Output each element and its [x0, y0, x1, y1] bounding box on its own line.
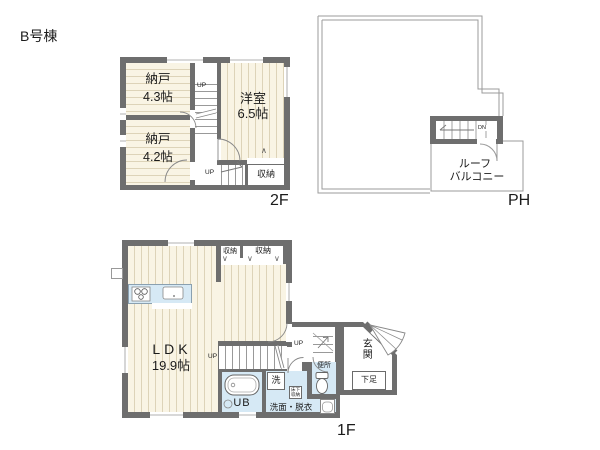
door-opening: [287, 356, 302, 371]
window: [168, 240, 194, 246]
roof-balcony-label-2: バルコニー: [450, 171, 505, 183]
room-label: 納戸: [145, 72, 170, 86]
kitchen-counter: [128, 284, 192, 304]
entrance-label: 玄関: [360, 338, 371, 360]
window: [122, 347, 128, 373]
window: [150, 412, 183, 418]
toilet-label: 便所: [317, 362, 331, 370]
floor-label-ph: PH: [508, 192, 530, 210]
vanity-unit: [320, 399, 335, 414]
floor-label-1f: 1F: [337, 422, 356, 440]
door-opening: [190, 162, 195, 180]
shoe-box-label: 下足: [361, 376, 377, 385]
window: [239, 412, 256, 418]
room-ldk-left: [128, 246, 218, 412]
building-label: B号棟: [20, 29, 57, 45]
ph-roof-outline: [318, 16, 523, 193]
window: [284, 67, 290, 97]
ph-stairwell: [430, 116, 503, 161]
up-label: UP: [205, 169, 214, 176]
room-size: 4.2帖: [143, 150, 173, 164]
ldk-label: LDK: [152, 342, 191, 358]
floor-label-2f: 2F: [270, 192, 289, 210]
floorplan-canvas: B号棟 納戸 4.3帖 納戸 4.2帖 洋室 6.5帖 収納 UP UP ∧ 2…: [0, 0, 600, 450]
folding-door-mark: ∨: [247, 255, 253, 264]
kitchen-vent: [111, 268, 123, 279]
folding-door-mark: ∨: [274, 255, 280, 264]
stairs-2f-bottom: [215, 165, 245, 185]
up-label: UP: [208, 353, 217, 360]
window: [120, 135, 126, 147]
room-size: 4.3帖: [143, 90, 173, 104]
folding-door-mark: ∧: [261, 147, 267, 156]
window: [286, 283, 292, 301]
room-2f-storage-1: [126, 63, 190, 115]
door-opening: [190, 110, 195, 128]
roof-balcony-label-1: ルーフ: [459, 158, 491, 170]
room-label: 洋室: [240, 92, 266, 107]
room-ldk-dining: [218, 264, 286, 341]
folding-door-mark: ∨: [222, 255, 228, 264]
room-label: 納戸: [145, 132, 170, 146]
kitchen-counter-edge: [152, 303, 192, 309]
unit-bath-label: UB: [233, 397, 250, 409]
underfloor-storage-label: 床下 収納: [289, 387, 302, 397]
washroom-label: 洗面・脱衣: [270, 403, 313, 413]
door-opening: [217, 139, 221, 160]
window: [120, 108, 126, 120]
window: [167, 57, 203, 63]
closet-label: 収納: [255, 247, 271, 256]
window: [230, 57, 263, 63]
up-label: UP: [294, 340, 303, 347]
dn-label: DN: [477, 125, 487, 131]
stairs-1f: [219, 346, 287, 369]
ldk-size: 19.9帖: [152, 359, 190, 374]
washer-label: 洗: [271, 375, 280, 385]
underfloor-line2: 収納: [289, 392, 302, 397]
closet-label: 収納: [257, 169, 275, 179]
stairs-winder: [313, 329, 333, 355]
room-size: 6.5帖: [237, 107, 268, 122]
closet-2f-front: [247, 158, 284, 164]
wall-toilet-left: [307, 362, 312, 395]
up-label: UP: [197, 82, 206, 89]
